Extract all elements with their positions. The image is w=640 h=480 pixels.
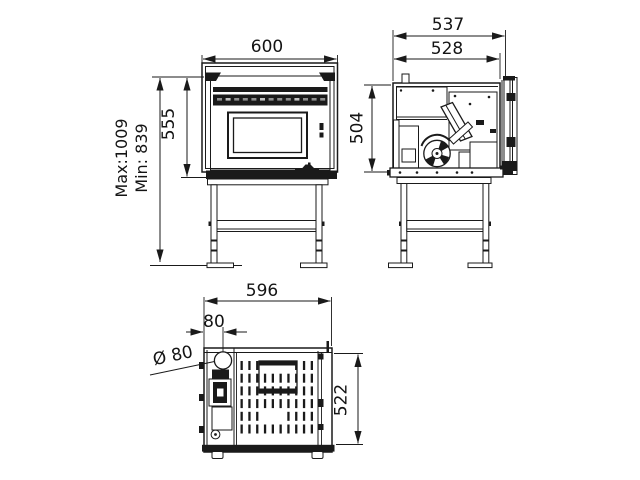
leg-notch (401, 250, 407, 252)
bolt (436, 171, 439, 174)
grate-frame-bottom-bar (259, 389, 297, 394)
screw (400, 89, 402, 91)
leg-notch (483, 250, 489, 252)
foot-tab-right (312, 452, 323, 459)
leg-pin (399, 222, 401, 227)
bolt (416, 171, 419, 174)
front-window-frame (228, 113, 307, 159)
leg-pin (322, 222, 325, 227)
door-front-bar (513, 78, 518, 175)
motor-window (217, 388, 225, 397)
bracket (476, 120, 484, 125)
fan-axle (436, 152, 439, 155)
stand-foot-left (207, 263, 234, 268)
hopper-panel (397, 87, 448, 117)
stove-technical-drawing: 600 555 Max:1009 Min: 839 (0, 0, 640, 480)
drawing-canvas: 600 555 Max:1009 Min: 839 (0, 0, 640, 480)
rail-block (318, 354, 324, 360)
top-trim-strip (213, 87, 328, 92)
leg-pin (209, 222, 212, 227)
top-right-bracket (319, 73, 335, 82)
side-view: 537 528 504 (348, 15, 518, 268)
lower-right-box (470, 142, 497, 168)
bolt (399, 171, 402, 174)
screw (454, 95, 457, 98)
leg-pin (489, 222, 491, 227)
component-block (212, 370, 229, 380)
front-view: 600 555 Max:1009 Min: 839 (112, 37, 338, 268)
door-hinge-tick (320, 123, 324, 130)
vent-slots (241, 361, 314, 434)
top-width-dim-label: 596 (246, 281, 278, 301)
stand-leg-left (211, 185, 217, 263)
front-width-dim-label: 600 (251, 37, 283, 57)
side-tab (199, 394, 204, 401)
rail-block (318, 399, 324, 407)
front-base-strip (206, 171, 337, 180)
front-window-glass (234, 118, 302, 153)
top-left-bracket (205, 73, 221, 82)
top-right-rail (318, 351, 324, 449)
junction-box (212, 407, 232, 430)
leg-notch (211, 240, 217, 242)
stand-top-plate (208, 179, 329, 185)
lower-step-box (459, 152, 470, 168)
door-top-cap (503, 76, 515, 81)
handle-tick (327, 341, 330, 352)
leg-notch (211, 250, 217, 252)
leg-notch (483, 240, 489, 242)
top-depth-dim-label: 522 (332, 384, 352, 416)
bolt (456, 171, 459, 174)
base-tab (387, 170, 391, 176)
top-front-strip (202, 445, 335, 452)
base-bolt (500, 166, 508, 170)
side-door-profile (502, 76, 517, 175)
stand-top-plate (397, 178, 491, 184)
screw (469, 103, 472, 106)
side-stand (389, 178, 493, 268)
door-hinge-block (507, 137, 516, 147)
top-flue-diameter-label: Ø 80 (151, 342, 195, 370)
exhaust-fan (422, 135, 451, 167)
bolt (471, 171, 474, 174)
stand-crossbar (407, 221, 483, 232)
top-view: 596 80 Ø 80 522 (150, 281, 363, 459)
door-hinge-tick (320, 133, 324, 138)
front-stand (207, 179, 328, 268)
screw (488, 96, 491, 99)
flue-outlet-circle (214, 352, 231, 369)
stand-foot-right (301, 263, 328, 268)
side-depth-overall-dim-label: 537 (432, 15, 464, 35)
bracket (490, 129, 496, 133)
foot-tab-left (212, 452, 223, 459)
side-base-strip (390, 168, 503, 177)
grate-frame-top-bar (259, 361, 297, 366)
leg-notch (316, 240, 322, 242)
side-height-dim-label: 504 (348, 112, 368, 144)
side-depth-body-dim-label: 528 (431, 39, 463, 59)
knob-center (214, 433, 217, 436)
front-max-height-dim-label: Max:1009 (112, 118, 131, 197)
stand-foot-left (389, 263, 413, 268)
stand-foot-right (468, 263, 492, 268)
door-hinge-block (507, 93, 516, 101)
base-bolt (503, 171, 513, 175)
top-flue-offset-dim-label: 80 (203, 312, 225, 332)
side-tab (199, 362, 204, 369)
front-min-height-dim-label: Min: 839 (132, 123, 151, 192)
stand-leg-right (316, 185, 322, 263)
front-body-height-dim-label: 555 (159, 108, 179, 140)
rail-block (318, 424, 324, 430)
leg-notch (401, 240, 407, 242)
side-left-strip (394, 120, 400, 168)
side-internals (394, 87, 498, 168)
flue-stub (402, 74, 409, 83)
screw (432, 89, 435, 92)
side-tab (199, 426, 204, 433)
stand-crossbar (217, 221, 316, 232)
door-latch (301, 163, 316, 170)
leg-notch (316, 250, 322, 252)
